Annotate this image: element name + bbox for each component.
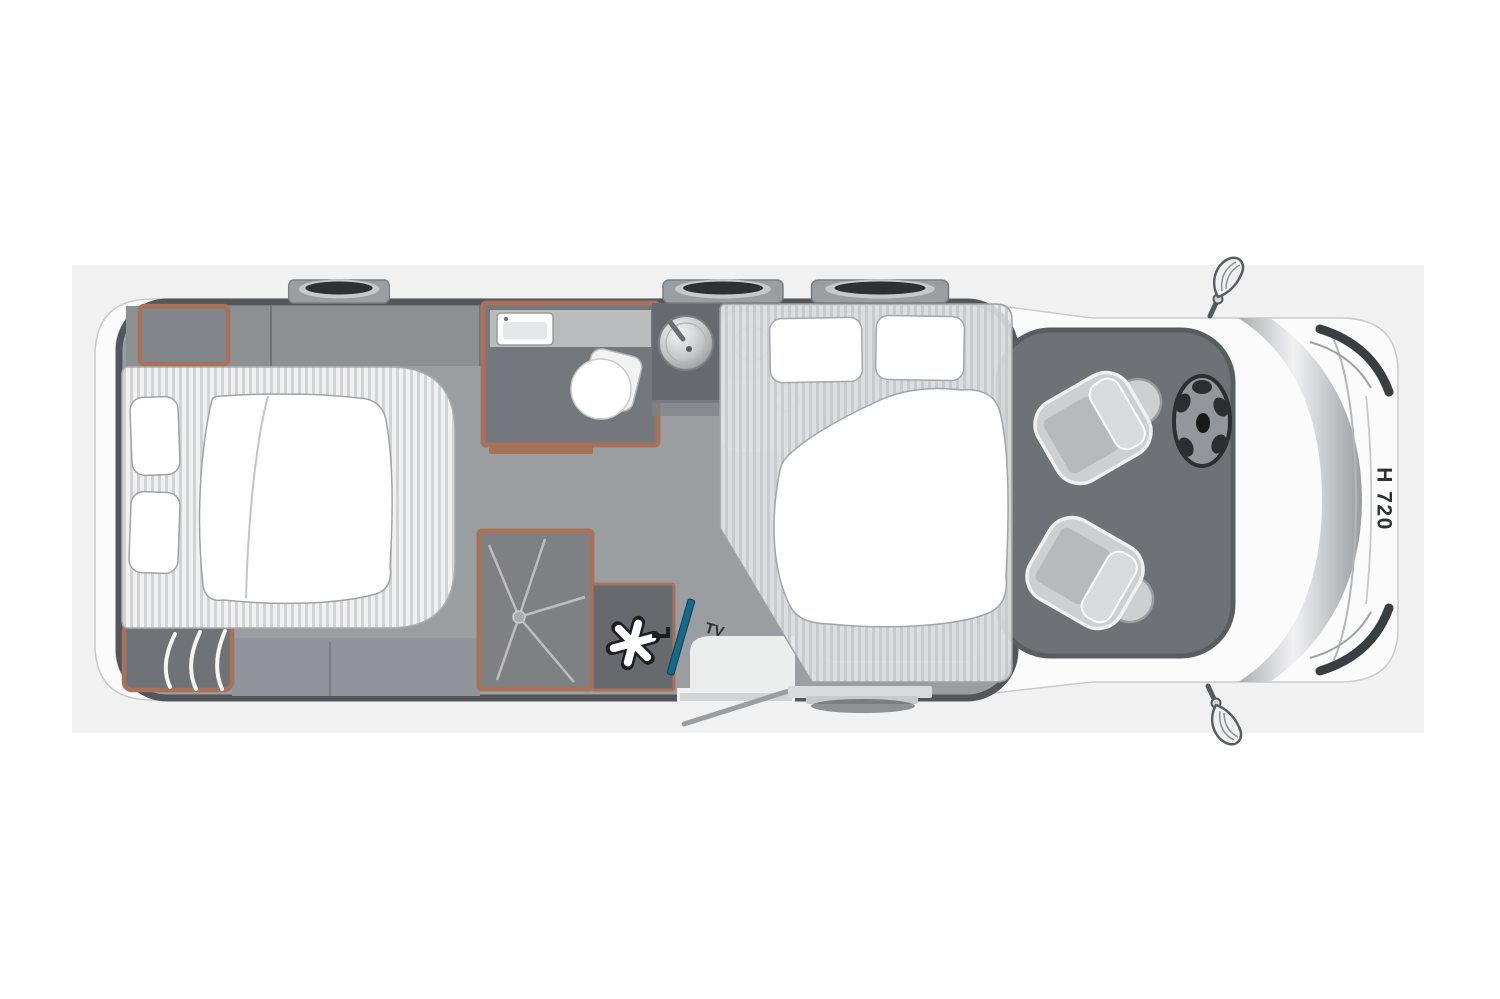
shower-tray [479, 531, 592, 689]
sink-plug [686, 346, 692, 352]
pillow [769, 317, 862, 383]
kitchen-unit [652, 303, 722, 416]
roof-vent-1 [289, 280, 390, 304]
floorplan-canvas: H 720 [0, 0, 1500, 999]
model-label: H 720 [1372, 467, 1395, 531]
shower-drain-icon [513, 611, 525, 623]
pillow [875, 315, 964, 381]
roof-vent-3 [812, 280, 949, 304]
kitchen-sink-icon [659, 316, 713, 370]
shower-cabin [479, 531, 592, 689]
pillow [130, 396, 181, 476]
bench-band [232, 638, 480, 696]
rear-wardrobe-bottom [124, 624, 232, 690]
sliding-door-rail [489, 445, 593, 454]
rear-island-bed [122, 367, 455, 628]
toilet-icon [571, 359, 631, 419]
entry-floor [690, 636, 795, 700]
steering-wheel-icon [1172, 376, 1231, 466]
kitchen-counter-shadow [652, 400, 722, 416]
step-shadow [811, 699, 915, 713]
roof-vent-2 [663, 280, 783, 304]
washroom [483, 303, 658, 454]
bottom-cabinets [232, 638, 480, 696]
basin-tap [504, 317, 508, 321]
washbasin-bowl [503, 322, 547, 339]
rear-wardrobe-top [140, 306, 228, 364]
duvet [200, 394, 393, 603]
pillow [129, 491, 181, 574]
